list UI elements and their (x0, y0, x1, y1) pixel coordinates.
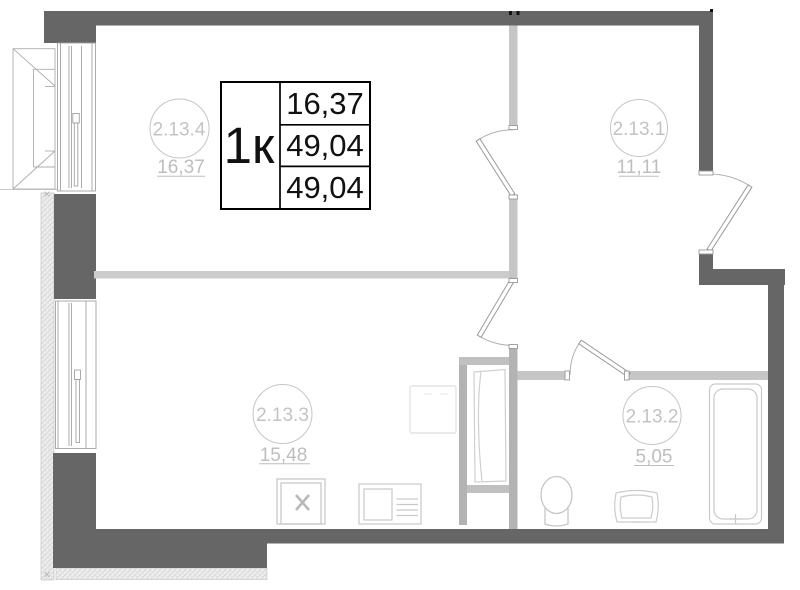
svg-text:16,37: 16,37 (286, 86, 364, 121)
svg-text:2.13.2: 2.13.2 (626, 407, 679, 428)
svg-text:5,05: 5,05 (636, 447, 673, 468)
svg-text:1к: 1к (224, 117, 275, 174)
svg-text:49,04: 49,04 (286, 128, 364, 163)
svg-text:2.13.1: 2.13.1 (613, 119, 666, 140)
svg-text:2.13.4: 2.13.4 (153, 120, 206, 141)
svg-text:11,11: 11,11 (617, 157, 662, 178)
svg-text:15,48: 15,48 (260, 445, 308, 466)
svg-text:16,37: 16,37 (157, 157, 205, 178)
svg-text:2.13.3: 2.13.3 (256, 405, 309, 426)
svg-text:49,04: 49,04 (286, 170, 364, 205)
